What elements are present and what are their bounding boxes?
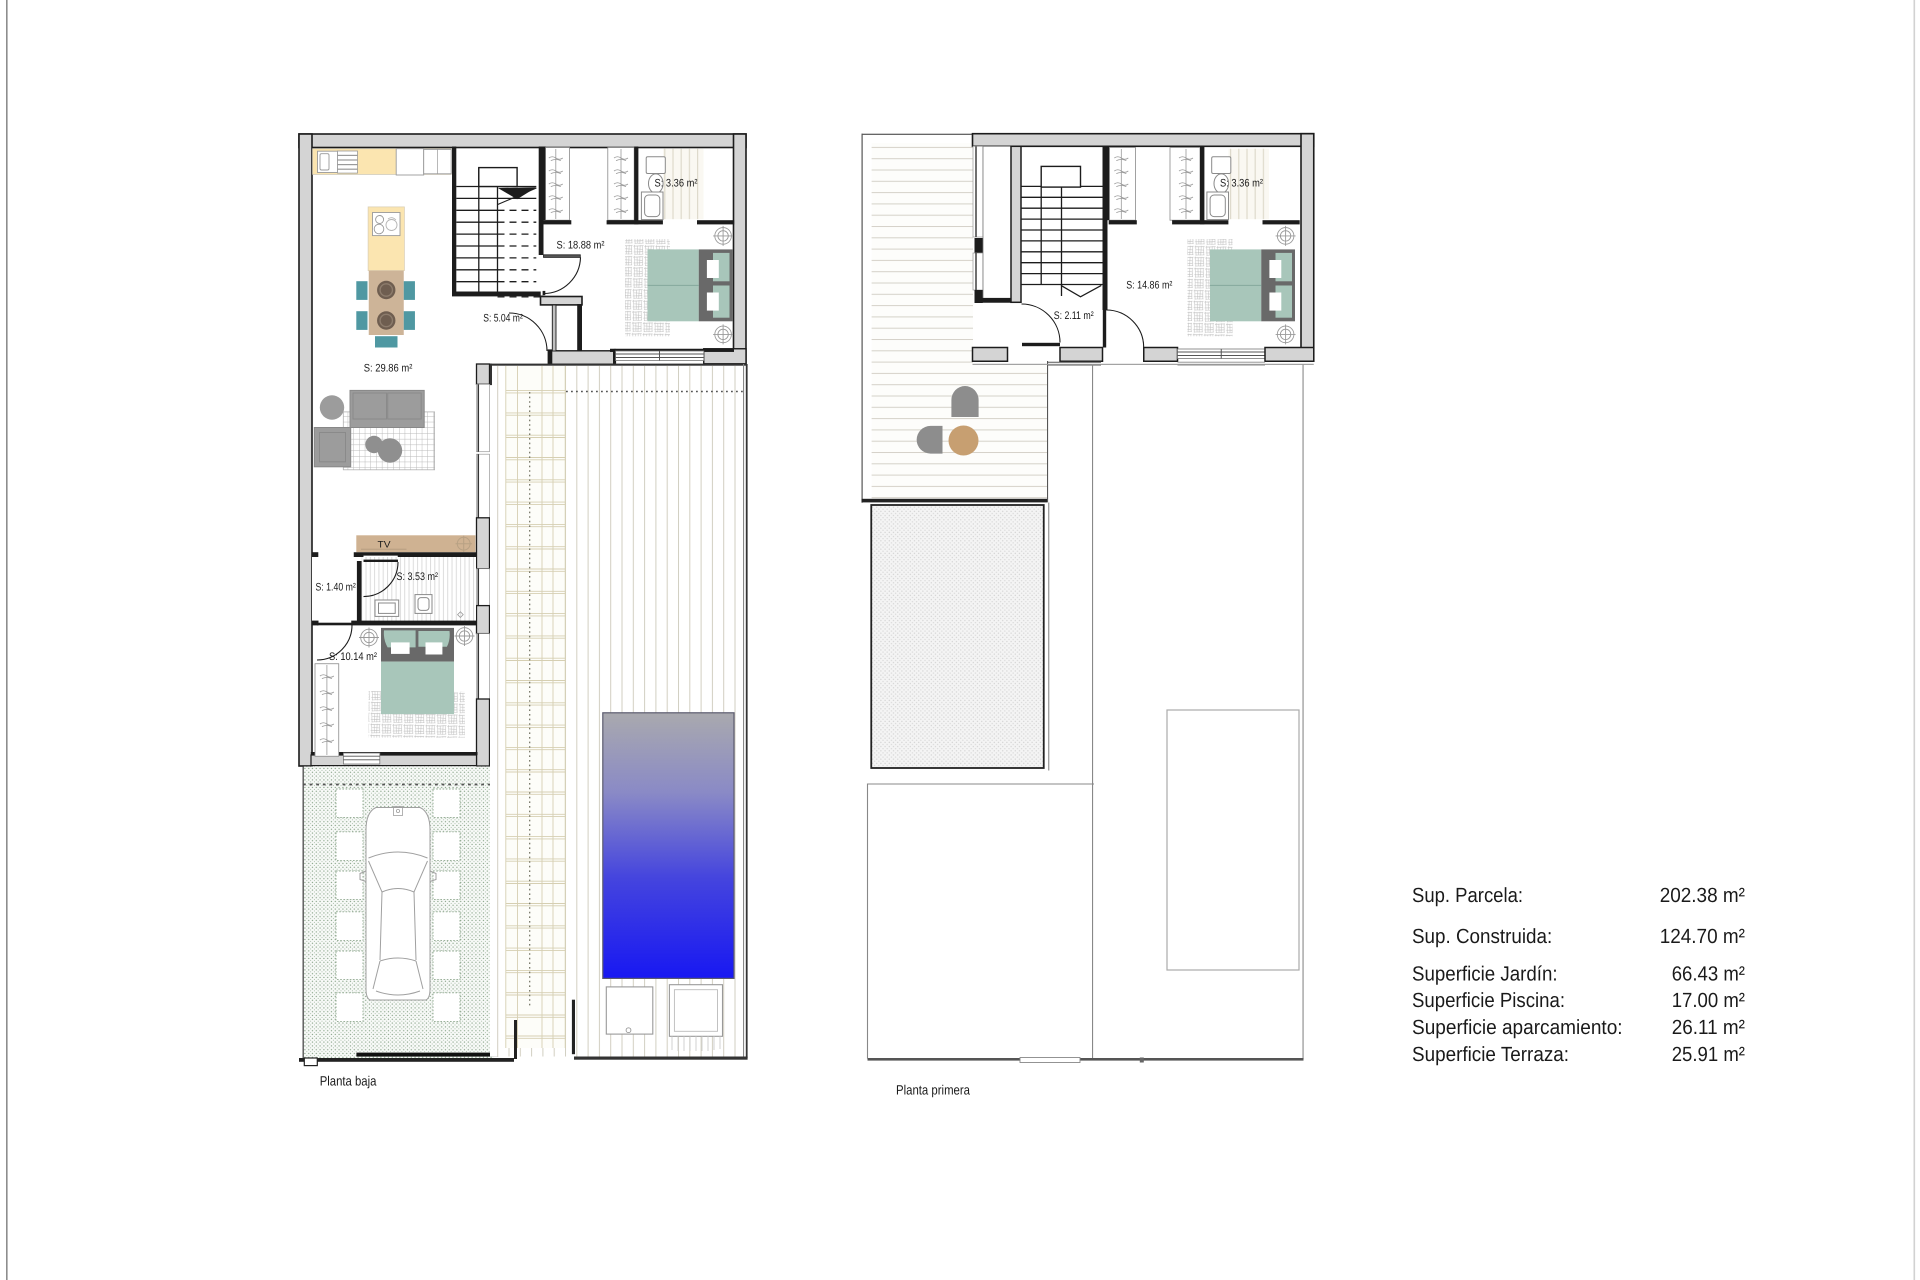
svg-text:Planta baja: Planta baja: [320, 1074, 377, 1089]
svg-text:S: 1.40 m²: S: 1.40 m²: [316, 582, 357, 594]
svg-text:S: 3.53 m²: S: 3.53 m²: [397, 571, 439, 583]
svg-text:S: 18.88 m²: S: 18.88 m²: [557, 240, 605, 252]
svg-text:Superficie aparcamiento:: Superficie aparcamiento:: [1412, 1016, 1623, 1039]
svg-text:S: 10.14 m²: S: 10.14 m²: [329, 651, 377, 663]
svg-text:66.43 m²: 66.43 m²: [1672, 963, 1745, 986]
svg-text:Planta primera: Planta primera: [896, 1083, 970, 1098]
svg-text:S: 29.86 m²: S: 29.86 m²: [364, 363, 413, 375]
svg-text:Superficie Jardín:: Superficie Jardín:: [1412, 963, 1558, 986]
svg-text:202.38 m²: 202.38 m²: [1660, 884, 1745, 907]
svg-text:S: 3.36 m²: S: 3.36 m²: [1220, 178, 1263, 190]
svg-text:17.00 m²: 17.00 m²: [1672, 989, 1745, 1012]
svg-text:Sup. Construida:: Sup. Construida:: [1412, 925, 1552, 948]
svg-text:124.70 m²: 124.70 m²: [1660, 925, 1745, 948]
svg-text:S: 2.11 m²: S: 2.11 m²: [1054, 310, 1094, 322]
svg-text:Superficie Piscina:: Superficie Piscina:: [1412, 989, 1565, 1012]
svg-text:Superficie Terraza:: Superficie Terraza:: [1412, 1043, 1569, 1066]
svg-text:S: 3.36 m²: S: 3.36 m²: [655, 178, 698, 190]
svg-text:26.11 m²: 26.11 m²: [1672, 1016, 1745, 1039]
svg-text:S: 5.04 m²: S: 5.04 m²: [483, 313, 523, 325]
svg-text:Sup. Parcela:: Sup. Parcela:: [1412, 884, 1523, 907]
svg-text:S: 14.86 m²: S: 14.86 m²: [1126, 280, 1172, 292]
svg-text:25.91 m²: 25.91 m²: [1672, 1043, 1745, 1066]
